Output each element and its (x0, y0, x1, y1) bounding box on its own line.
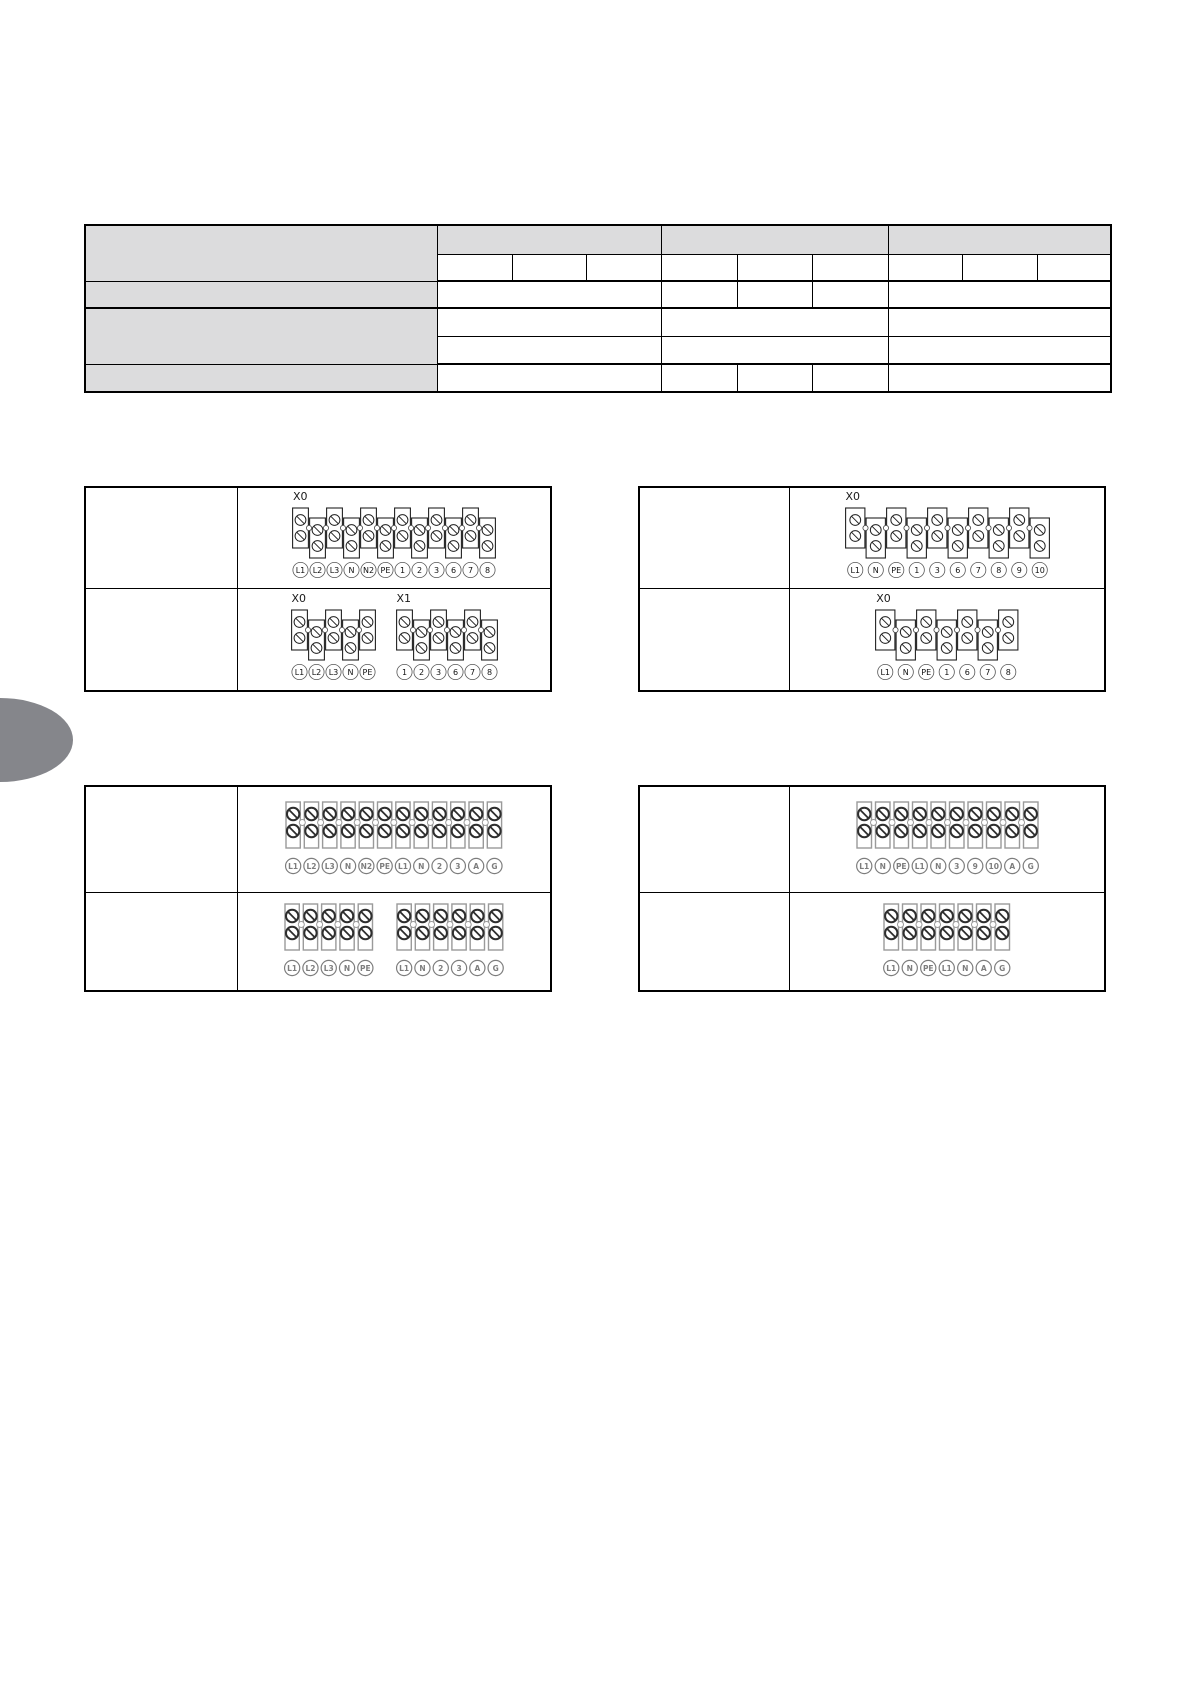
terminal-label: 2 (417, 566, 422, 575)
table-cell (737, 281, 812, 308)
diagram-box-bottom-right: L1NPEL1N3910AG L1NPEL1NAG (638, 785, 1106, 992)
terminal-label: L3 (325, 861, 335, 870)
strip-designator: X0 (876, 592, 1020, 608)
table-cell (661, 281, 737, 308)
terminal-label: PE (923, 963, 934, 972)
terminal-label: 3 (434, 566, 439, 575)
terminal-label: L1 (914, 861, 924, 870)
terminal-label: 2 (418, 667, 423, 676)
terminal-label: PE (895, 861, 906, 870)
terminal-strip: L1L2L3NPE (282, 902, 376, 982)
terminal-strip: L1N23AG (394, 902, 506, 982)
diagram-label-cell (640, 589, 790, 690)
terminal-label: PE (922, 667, 932, 676)
terminal-label: 7 (468, 566, 473, 575)
table-group-header (888, 225, 1111, 254)
terminal-label: 7 (985, 667, 990, 676)
terminal-label: 3 (934, 566, 939, 575)
diagram-box-top-left: X0L1L2L3NN2PE123678 X0L1L2L3NPEX1123678 (84, 486, 552, 692)
terminal-label: 6 (452, 667, 457, 676)
terminal-label: A (1009, 861, 1015, 870)
diagram-cell: L1L2L3NN2PEL1N23AG (238, 787, 550, 893)
terminal-label: PE (362, 667, 372, 676)
diagram-label-cell (640, 787, 790, 893)
terminal-strip-drawing: L1L2L3NPE (290, 608, 377, 688)
terminal-label: G (1027, 861, 1033, 870)
terminal-label: 8 (996, 566, 1001, 575)
terminal-label: PE (891, 566, 901, 575)
terminal-label: L3 (328, 667, 338, 676)
terminal-strip-drawing: L1L2L3NN2PE123678 (291, 506, 497, 586)
table-cell (512, 254, 586, 281)
diagram-label-cell (86, 787, 238, 893)
terminal-label: L2 (307, 861, 317, 870)
terminal-label: L1 (288, 861, 298, 870)
terminal-label: 7 (469, 667, 474, 676)
terminal-strip-drawing: L1N23AG (394, 902, 506, 982)
terminal-label: 8 (486, 667, 491, 676)
diagram-label-cell (640, 488, 790, 589)
terminal-label: PE (380, 861, 391, 870)
table-group-header (661, 225, 888, 254)
table-cell (661, 308, 888, 336)
terminal-label: 3 (456, 963, 461, 972)
terminal-strip-drawing: 123678 (395, 608, 499, 688)
terminal-label: N (345, 861, 351, 870)
terminal-label: L1 (881, 667, 891, 676)
terminal-label: N (872, 566, 878, 575)
strip-designator: X0 (846, 490, 1051, 506)
terminal-label: L1 (287, 963, 297, 972)
terminal-label: 6 (451, 566, 456, 575)
table-label-cell (85, 225, 437, 281)
terminal-label: L3 (324, 963, 334, 972)
terminal-label: 1 (401, 667, 406, 676)
terminal-strip: X1123678 (395, 592, 499, 688)
table-cell (437, 308, 661, 336)
diagram-box-top-right: X0L1NPE13678910 X0L1NPE1678 (638, 486, 1106, 692)
manual-page: X0L1L2L3NN2PE123678 X0L1L2L3NPEX1123678 … (0, 0, 1190, 1684)
terminal-strip: X0L1L2L3NPE (290, 592, 377, 688)
terminal-strip: L1L2L3NN2PEL1N23AG (283, 800, 505, 880)
terminal-label: PE (360, 963, 371, 972)
terminal-strip: X0L1L2L3NN2PE123678 (291, 490, 497, 586)
terminal-label: N2 (361, 861, 372, 870)
table-cell (437, 336, 661, 364)
table-cell (888, 364, 1111, 392)
table-cell (661, 254, 737, 281)
table-cell (661, 364, 737, 392)
table-cell (437, 364, 661, 392)
terminal-label: A (981, 963, 987, 972)
terminal-label: L1 (294, 667, 304, 676)
strip-designator: X0 (292, 592, 377, 608)
terminal-label: 7 (975, 566, 980, 575)
table-cell (812, 254, 888, 281)
terminal-label: N (419, 963, 425, 972)
terminal-label: L1 (887, 963, 897, 972)
terminal-label: 8 (485, 566, 490, 575)
table-cell (586, 254, 661, 281)
table-cell (962, 254, 1037, 281)
terminal-label: N (879, 861, 885, 870)
terminal-label: N (344, 963, 350, 972)
diagram-cell: L1NPEL1N3910AG (790, 787, 1104, 893)
table-cell (661, 336, 888, 364)
terminal-label: N (935, 861, 941, 870)
terminal-label: 8 (1006, 667, 1011, 676)
table-cell (888, 308, 1111, 336)
table-cell (737, 254, 812, 281)
table-cell (888, 336, 1111, 364)
terminal-label: L1 (399, 963, 409, 972)
terminal-label: N (903, 667, 909, 676)
terminal-strip-drawing: L1NPEL1N3910AG (854, 800, 1041, 880)
terminal-label: 1 (914, 566, 919, 575)
terminal-label: L1 (850, 566, 860, 575)
table-cell (737, 364, 812, 392)
terminal-label: 2 (438, 963, 443, 972)
diagram-label-cell (86, 488, 238, 589)
terminal-label: 3 (435, 667, 440, 676)
terminal-label: L1 (859, 861, 869, 870)
terminal-label: G (999, 963, 1005, 972)
terminal-label: N2 (363, 566, 374, 575)
terminal-strip: X0L1NPE1678 (874, 592, 1020, 688)
terminal-label: L2 (311, 667, 321, 676)
terminal-strip: L1NPEL1N3910AG (854, 800, 1041, 880)
spec-table (84, 224, 1112, 393)
terminal-label: L3 (330, 566, 340, 575)
terminal-label: 1 (400, 566, 405, 575)
chapter-tab (0, 698, 73, 782)
terminal-label: 6 (955, 566, 960, 575)
terminal-strip-drawing: L1NPEL1NAG (881, 902, 1013, 982)
diagram-cell: X0L1NPE13678910 (790, 488, 1104, 589)
terminal-label: A (473, 861, 479, 870)
terminal-strip-drawing: L1L2L3NN2PEL1N23AG (283, 800, 505, 880)
table-label-cell (85, 281, 437, 308)
terminal-label: N (907, 963, 913, 972)
strip-designator: X1 (397, 592, 499, 608)
terminal-label: G (492, 963, 498, 972)
table-cell (1037, 254, 1111, 281)
terminal-label: 10 (988, 861, 998, 870)
terminal-label: N (349, 566, 355, 575)
terminal-strip: L1NPEL1NAG (881, 902, 1013, 982)
table-cell (812, 364, 888, 392)
diagram-box-bottom-left: L1L2L3NN2PEL1N23AG L1L2L3NPEL1N23AG (84, 785, 552, 992)
terminal-label: L2 (306, 963, 316, 972)
terminal-label: 10 (1034, 566, 1044, 575)
terminal-strip-drawing: L1NPE13678910 (844, 506, 1051, 586)
strip-designator: X0 (293, 490, 497, 506)
diagram-label-cell (86, 589, 238, 690)
terminal-label: 3 (954, 861, 959, 870)
terminal-strip-drawing: L1L2L3NPE (282, 902, 376, 982)
terminal-strip-drawing: L1NPE1678 (874, 608, 1020, 688)
terminal-label: L1 (942, 963, 952, 972)
terminal-label: 9 (972, 861, 977, 870)
terminal-label: G (492, 861, 498, 870)
terminal-label: N (962, 963, 968, 972)
terminal-label: L1 (398, 861, 408, 870)
table-cell (437, 254, 512, 281)
diagram-cell: L1L2L3NPEL1N23AG (238, 893, 550, 990)
diagram-cell: X0L1L2L3NN2PE123678 (238, 488, 550, 589)
table-cell (888, 281, 1111, 308)
terminal-label: 1 (944, 667, 949, 676)
terminal-label: PE (381, 566, 391, 575)
terminal-label: 9 (1016, 566, 1021, 575)
table-cell (437, 281, 661, 308)
table-cell (888, 254, 962, 281)
terminal-label: L1 (296, 566, 306, 575)
diagram-cell: L1NPEL1NAG (790, 893, 1104, 990)
diagram-cell: X0L1L2L3NPEX1123678 (238, 589, 550, 690)
diagram-label-cell (640, 893, 790, 990)
terminal-label: 6 (965, 667, 970, 676)
terminal-strip: X0L1NPE13678910 (844, 490, 1051, 586)
table-label-cell (85, 364, 437, 392)
diagram-label-cell (86, 893, 238, 990)
terminal-label: L2 (313, 566, 323, 575)
terminal-label: N (418, 861, 424, 870)
diagram-cell: X0L1NPE1678 (790, 589, 1104, 690)
terminal-label: 2 (437, 861, 442, 870)
terminal-label: N (347, 667, 353, 676)
table-cell (812, 281, 888, 308)
terminal-label: A (474, 963, 480, 972)
table-label-cell (85, 308, 437, 364)
table-group-header (437, 225, 661, 254)
terminal-label: 3 (455, 861, 460, 870)
